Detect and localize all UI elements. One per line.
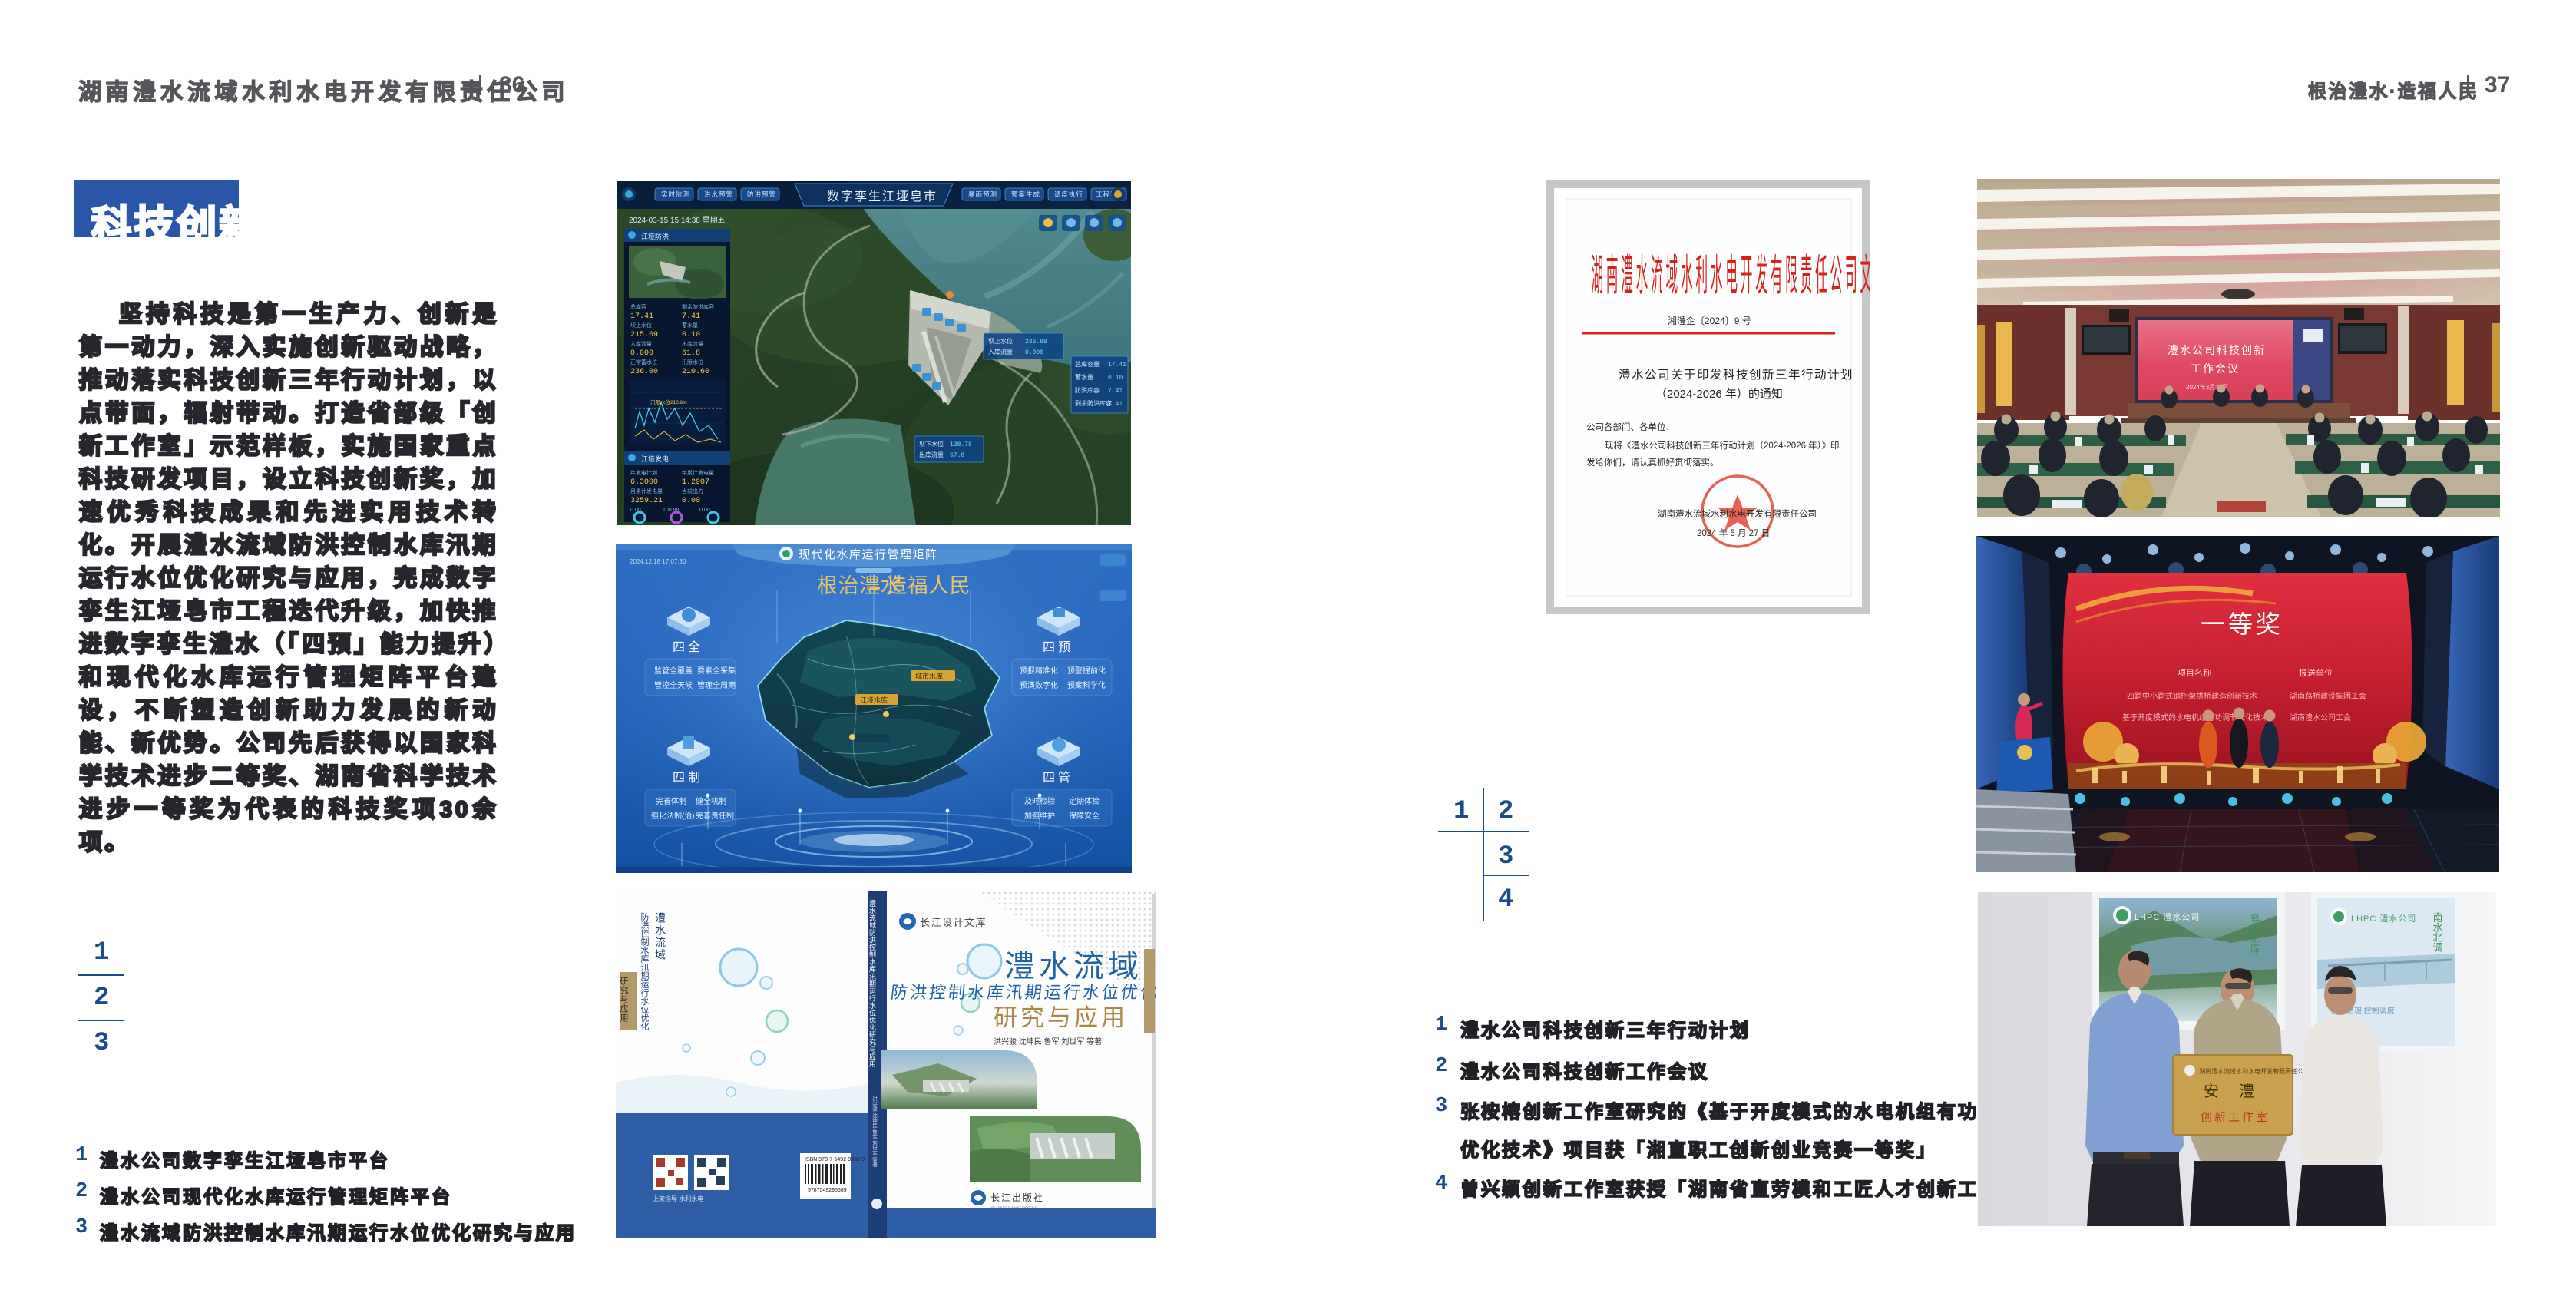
svg-text:剩余防洪库容: 剩余防洪库容 — [682, 303, 714, 310]
svg-text:防洪库容: 防洪库容 — [1075, 386, 1100, 394]
svg-text:城市水库: 城市水库 — [915, 672, 943, 680]
svg-text:总库容: 总库容 — [630, 303, 646, 310]
svg-text:安澧: 安澧 — [2204, 1083, 2274, 1100]
svg-text:长江设计文库: 长江设计文库 — [920, 917, 987, 928]
svg-text:澧水公司关于印发科技创新三年行动计划: 澧水公司关于印发科技创新三年行动计划 — [1619, 368, 1853, 382]
svg-text:2024.12.18 17:07:30: 2024.12.18 17:07:30 — [630, 558, 686, 565]
svg-text:当前出力: 当前出力 — [682, 488, 703, 494]
svg-text:管控全天候: 管控全天候 — [654, 680, 693, 690]
svg-text:实时监测: 实时监测 — [661, 190, 690, 198]
svg-text:澧水流域: 澧水流域 — [1004, 950, 1143, 984]
svg-text:预警提前化: 预警提前化 — [1067, 666, 1106, 676]
svg-text:210.60: 210.60 — [682, 368, 709, 376]
svg-text:现将《澧水公司科技创新三年行动计划（2024-2026 年）: 现将《澧水公司科技创新三年行动计划（2024-2026 年）》印 — [1605, 440, 1839, 451]
svg-text:剩余防洪库容: 剩余防洪库容 — [1075, 399, 1112, 407]
svg-text:现代化水库运行管理矩阵: 现代化水库运行管理矩阵 — [799, 548, 938, 561]
svg-text:总库容量: 总库容量 — [1075, 360, 1100, 368]
svg-text:澧水流域防洪控制水库汛期运行水位优化研究与应用: 澧水流域防洪控制水库汛期运行水位优化研究与应用 — [868, 899, 876, 1068]
svg-text:预案科学化: 预案科学化 — [1067, 680, 1106, 690]
svg-text:健全机制: 健全机制 — [696, 796, 726, 806]
svg-text:江垭水库: 江垭水库 — [860, 696, 888, 704]
svg-text:南水北调: 南水北调 — [2432, 911, 2443, 952]
svg-text:数字孪生江垭皂市: 数字孪生江垭皂市 — [827, 190, 937, 203]
svg-text:研究与应用: 研究与应用 — [994, 1004, 1128, 1031]
svg-text:0.10: 0.10 — [1108, 375, 1123, 382]
svg-text:出库流量: 出库流量 — [919, 451, 944, 458]
svg-text:9787549295689: 9787549295689 — [808, 1188, 847, 1193]
svg-text:皂市水库: 皂市水库 — [2249, 914, 2260, 954]
svg-text:17.41: 17.41 — [1108, 362, 1126, 369]
svg-text:澧水公司科技创新: 澧水公司科技创新 — [2168, 344, 2266, 356]
svg-text:预报精准化: 预报精准化 — [1020, 666, 1058, 676]
svg-text:报送单位: 报送单位 — [2299, 667, 2333, 678]
svg-text:LHPC 澧水公司: LHPC 澧水公司 — [2351, 913, 2416, 924]
svg-text:入库流量: 入库流量 — [988, 348, 1013, 355]
svg-text:17.41: 17.41 — [630, 312, 653, 321]
svg-text:四制: 四制 — [673, 771, 703, 785]
svg-text:江垭防洪: 江垭防洪 — [641, 232, 669, 240]
svg-text:预演数字化: 预演数字化 — [1020, 680, 1058, 690]
svg-text:完善体制: 完善体制 — [656, 796, 686, 806]
svg-text:湘澧企〔2024〕9 号: 湘澧企〔2024〕9 号 — [1668, 315, 1751, 326]
svg-text:2024 年 5 月 27 日: 2024 年 5 月 27 日 — [1697, 527, 1770, 538]
svg-text:发给你们，请认真抓好贯彻落实。: 发给你们，请认真抓好贯彻落实。 — [1586, 457, 1719, 468]
svg-text:湖南澧水流域水利水电开发有限责任公司: 湖南澧水流域水利水电开发有限责任公司 — [1658, 508, 1817, 519]
svg-text:造福人民: 造福人民 — [886, 574, 971, 597]
svg-text:防洪控制水库汛期运行水位优化: 防洪控制水库汛期运行水位优化 — [890, 983, 1156, 1002]
svg-text:（2024-2026 年）的通知: （2024-2026 年）的通知 — [1655, 388, 1783, 401]
svg-text:调度执行: 调度执行 — [1054, 190, 1083, 198]
svg-text:3259.21: 3259.21 — [630, 497, 663, 505]
svg-text:6.3000: 6.3000 — [630, 478, 658, 487]
svg-text:61.8: 61.8 — [682, 349, 700, 358]
svg-text:年累计发电量: 年累计发电量 — [682, 469, 714, 476]
svg-text:澧水流域: 澧水流域 — [654, 912, 666, 961]
svg-text:四预: 四预 — [1043, 640, 1073, 654]
svg-text:完善责任制: 完善责任制 — [696, 811, 734, 821]
svg-text:215.69: 215.69 — [630, 331, 658, 339]
svg-text:湖南澧水公司工会: 湖南澧水公司工会 — [2290, 713, 2351, 722]
svg-text:一等奖: 一等奖 — [2201, 610, 2283, 638]
svg-text:128.78: 128.78 — [950, 441, 972, 448]
svg-text:0.000: 0.000 — [1025, 349, 1043, 356]
svg-text:创新工作室: 创新工作室 — [2201, 1111, 2270, 1124]
svg-text:坝上水位: 坝上水位 — [630, 322, 652, 329]
svg-text:要素全采集: 要素全采集 — [697, 666, 736, 676]
svg-text:月累计发电量: 月累计发电量 — [630, 488, 663, 494]
svg-text:防洪预警: 防洪预警 — [747, 190, 776, 198]
svg-text:0.00: 0.00 — [699, 508, 710, 513]
svg-text:236.69: 236.69 — [1025, 339, 1047, 346]
svg-text:基于开度模式的水电机组有功调节优化技术: 基于开度模式的水电机组有功调节优化技术 — [2122, 713, 2268, 722]
svg-text:1.2907: 1.2907 — [682, 478, 709, 487]
svg-text:江垭发电: 江垭发电 — [641, 455, 669, 463]
svg-text:监管全覆盖: 监管全覆盖 — [654, 666, 693, 676]
svg-text:236.00: 236.00 — [630, 368, 658, 376]
svg-text:蓄水量: 蓄水量 — [1075, 373, 1093, 381]
svg-text:坝上水位: 坝上水位 — [988, 337, 1013, 345]
svg-text:蓄水量: 蓄水量 — [682, 322, 698, 329]
svg-text:公司各部门、各单位：: 公司各部门、各单位： — [1586, 422, 1675, 432]
svg-text:0.00: 0.00 — [682, 497, 700, 505]
svg-text:管理全周期: 管理全周期 — [697, 680, 736, 690]
svg-text:四跨中小跨式钢桁架拱桥建造创新技术: 四跨中小跨式钢桁架拱桥建造创新技术 — [2127, 691, 2257, 701]
svg-text:ISBN 978-7-5492-9568-9: ISBN 978-7-5492-9568-9 — [805, 1157, 865, 1162]
svg-text:汛限水位: 汛限水位 — [682, 359, 703, 365]
svg-text:0.10: 0.10 — [682, 331, 700, 339]
svg-text:湖南澧水流域水利水电开发有限责任公司: 湖南澧水流域水利水电开发有限责任公司 — [2199, 1067, 2310, 1075]
svg-text:预案生成: 预案生成 — [1011, 190, 1040, 198]
svg-text:湖南澧水流域水利水电开发有限责任公司文件: 湖南澧水流域水利水电开发有限责任公司文件 — [1591, 252, 1870, 300]
svg-text:长江出版社: 长江出版社 — [990, 1192, 1044, 1203]
svg-text:研究与应用: 研究与应用 — [619, 977, 629, 1023]
svg-text:保障安全: 保障安全 — [1069, 811, 1100, 821]
svg-text:定期体检: 定期体检 — [1069, 796, 1100, 806]
svg-text:7.41: 7.41 — [1108, 388, 1123, 395]
svg-text:坝下水位: 坝下水位 — [919, 440, 944, 448]
svg-text:年发电计划: 年发电计划 — [630, 469, 657, 476]
svg-text:67.8: 67.8 — [950, 452, 964, 459]
svg-text:LHPC 澧水公司: LHPC 澧水公司 — [2135, 911, 2200, 922]
svg-text:0.000: 0.000 — [630, 349, 653, 358]
svg-text:洪兴骏 沈坤民 鲁军 刘世军 等著: 洪兴骏 沈坤民 鲁军 刘世军 等著 — [994, 1037, 1102, 1046]
svg-text:正常蓄水位: 正常蓄水位 — [630, 359, 657, 365]
svg-text:湖南路桥建设集团工会: 湖南路桥建设集团工会 — [2290, 691, 2366, 701]
svg-text:7.41: 7.41 — [682, 312, 700, 321]
svg-text:暴雨预测: 暴雨预测 — [968, 190, 997, 198]
svg-text:洪水预警: 洪水预警 — [704, 190, 733, 198]
svg-text:防洪控制水库汛期运行水位优化: 防洪控制水库汛期运行水位优化 — [640, 911, 650, 1031]
svg-text:四管: 四管 — [1043, 771, 1073, 785]
svg-text:强化法制(治): 强化法制(治) — [651, 811, 695, 821]
svg-text:7.41: 7.41 — [1108, 401, 1123, 408]
svg-text:四全: 四全 — [673, 640, 703, 654]
svg-text:上架指导 水利水电: 上架指导 水利水电 — [653, 1195, 703, 1202]
svg-text:入库流量: 入库流量 — [630, 340, 652, 347]
svg-text:出库流量: 出库流量 — [682, 340, 703, 347]
svg-text:项目名称: 项目名称 — [2178, 667, 2211, 678]
svg-text:汛限水位210.6m: 汛限水位210.6m — [650, 398, 687, 405]
svg-text:工作会议: 工作会议 — [2191, 362, 2240, 375]
svg-text:2024-03-15 15:14:38 星期五: 2024-03-15 15:14:38 星期五 — [629, 216, 726, 225]
